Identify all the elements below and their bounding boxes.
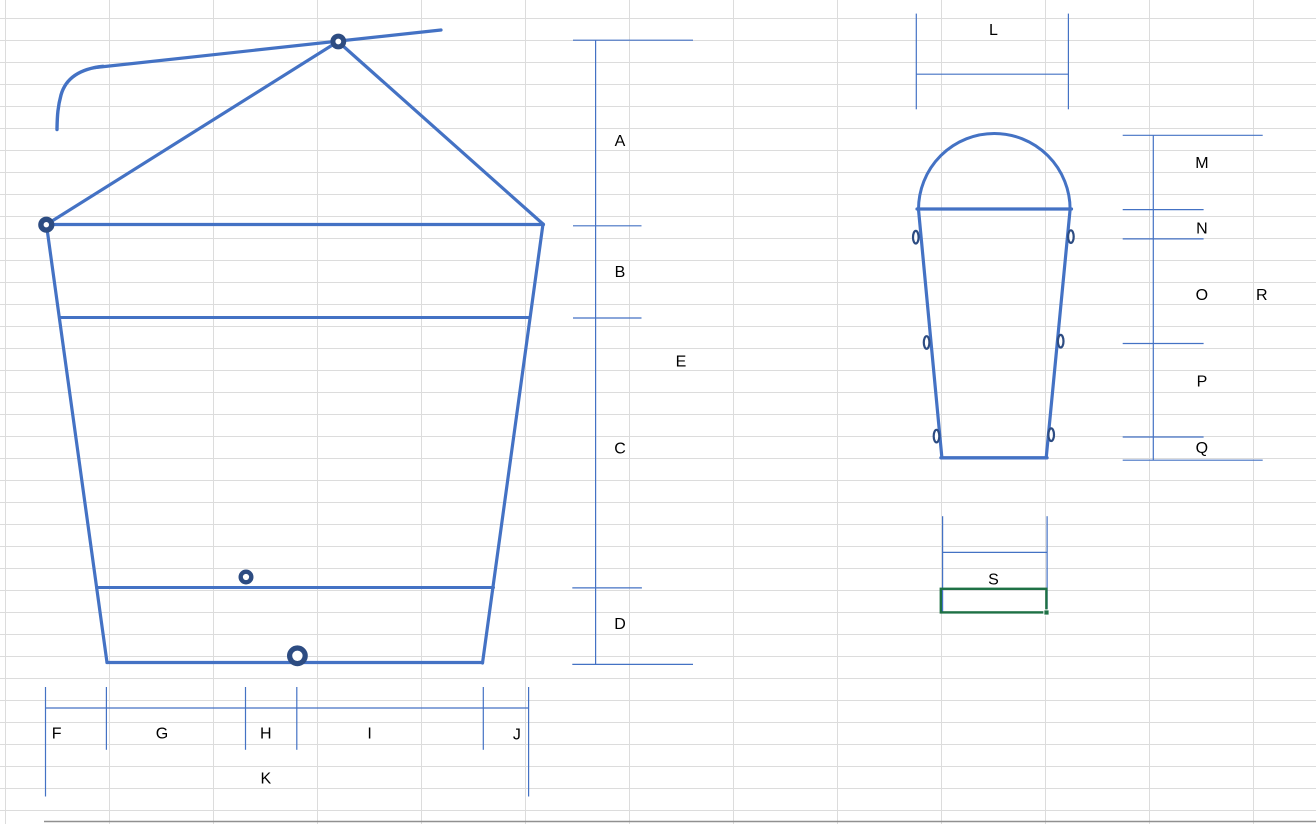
- svg-text:J: J: [513, 726, 521, 743]
- svg-text:C: C: [614, 441, 626, 458]
- svg-text:H: H: [260, 726, 272, 743]
- svg-text:M: M: [1195, 155, 1208, 172]
- svg-text:G: G: [156, 726, 168, 743]
- svg-text:L: L: [989, 22, 998, 39]
- svg-text:B: B: [615, 264, 626, 281]
- svg-text:F: F: [52, 726, 62, 743]
- svg-text:O: O: [1196, 287, 1208, 304]
- svg-text:E: E: [676, 354, 687, 371]
- svg-text:D: D: [614, 616, 626, 633]
- svg-text:N: N: [1196, 221, 1208, 238]
- svg-text:A: A: [615, 133, 626, 150]
- svg-text:K: K: [260, 771, 271, 788]
- svg-text:P: P: [1197, 374, 1208, 391]
- svg-text:S: S: [988, 572, 999, 589]
- svg-text:I: I: [367, 726, 371, 743]
- svg-text:Q: Q: [1196, 440, 1208, 457]
- svg-text:R: R: [1256, 287, 1268, 304]
